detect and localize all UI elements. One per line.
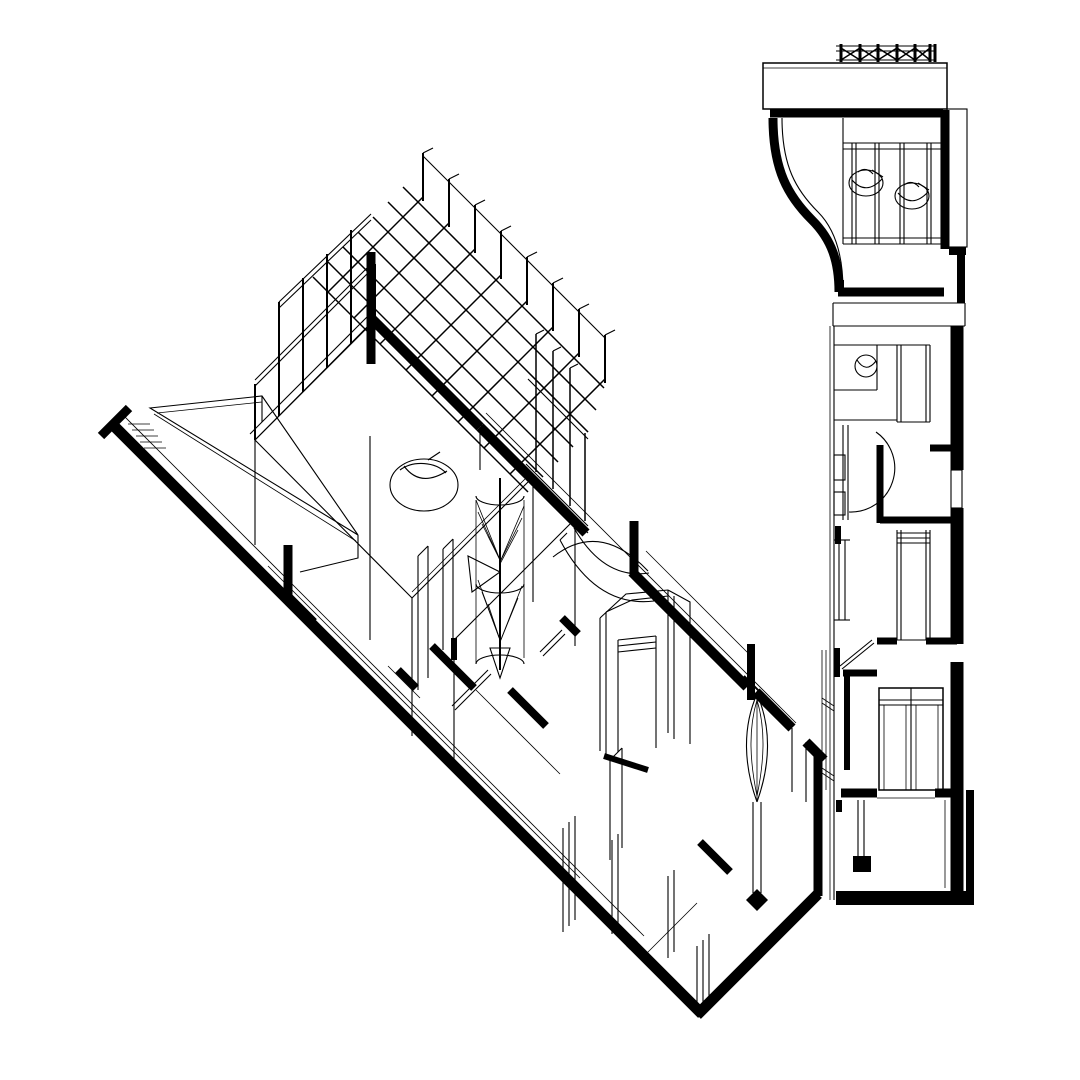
architectural-drawing	[0, 0, 1080, 1080]
paper-background	[0, 0, 1080, 1080]
drawing-page	[0, 0, 1080, 1080]
stub-wall	[853, 856, 871, 872]
